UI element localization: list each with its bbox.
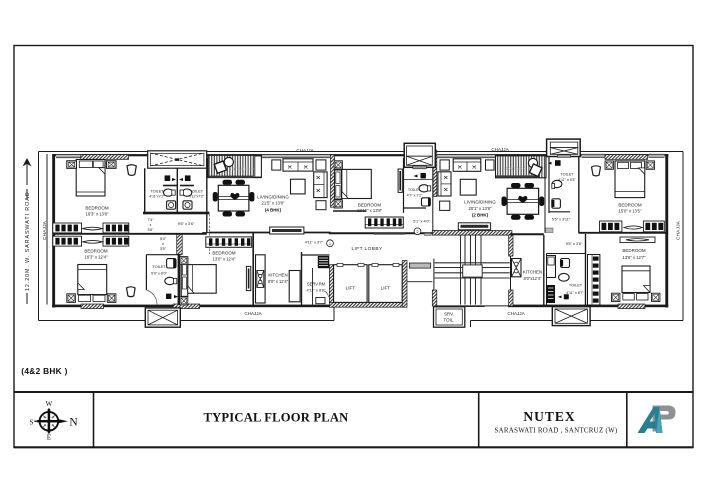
svg-text:KITCHEN: KITCHEN [523,269,542,274]
svg-text:(2 BHK): (2 BHK) [472,213,489,218]
svg-text:CHAJJA: CHAJJA [676,220,681,240]
svg-text:TOILET: TOILET [560,172,574,176]
svg-text:4'11"x7'2": 4'11"x7'2" [149,194,165,198]
svg-text:7'4": 7'4" [147,218,154,222]
svg-text:W: W [46,400,53,408]
svg-text:12.20M. W. SARASWATI ROAD: 12.20M. W. SARASWATI ROAD [25,192,31,291]
svg-text:LIFT: LIFT [381,286,391,291]
svg-text:E: E [47,433,52,441]
svg-text:LIFT LOBBY: LIFT LOBBY [351,246,383,252]
svg-text:CHAJJA: CHAJJA [244,311,262,316]
svg-text:BEDROOM: BEDROOM [85,206,109,211]
svg-text:CHAJJA: CHAJJA [42,220,47,240]
svg-text:SITOUT DECK: SITOUT DECK [232,167,255,171]
svg-text:4'11" x 8'6": 4'11" x 8'6" [307,287,327,292]
svg-text:KITCHEN: KITCHEN [268,273,287,278]
svg-text:13'0" x 12'4": 13'0" x 12'4" [213,257,236,262]
svg-text:(4&2 BHK ): (4&2 BHK ) [21,366,67,376]
svg-text:x: x [150,223,152,227]
svg-text:LIFT: LIFT [346,286,356,291]
svg-text:5'5" x 3'11": 5'5" x 3'11" [552,217,571,221]
svg-text:16'3" x 12'4": 16'3" x 12'4" [85,255,108,260]
svg-text:TOILET: TOILET [152,265,166,269]
svg-text:4'7" x 7'2": 4'7" x 7'2" [407,193,423,197]
svg-text:CHAJJA: CHAJJA [491,147,509,152]
svg-text:(4 BHK): (4 BHK) [265,207,282,212]
svg-text:21'5" x 13'8": 21'5" x 13'8" [262,201,285,206]
svg-text:5'0" x 8'0": 5'0" x 8'0" [151,272,167,276]
svg-text:BEDROOM: BEDROOM [212,251,236,256]
svg-text:TOILET: TOILET [150,190,164,194]
svg-text:TOILET: TOILET [569,283,583,287]
svg-text:8'0"x12'4": 8'0"x12'4" [524,276,542,281]
svg-text:LIVING/DINING: LIVING/DINING [257,194,289,199]
svg-text:4'11" x 3'7": 4'11" x 3'7" [305,241,324,245]
svg-text:SARASWATI ROAD , SANTCRUZ (W): SARASWATI ROAD , SANTCRUZ (W) [495,428,618,435]
svg-text:5'4": 5'4" [160,237,167,241]
svg-text:4'11" x 8'7": 4'11" x 8'7" [566,291,584,295]
svg-text:5'1" x 4'0": 5'1" x 4'0" [413,219,430,223]
svg-text:BEDROOM: BEDROOM [622,248,646,253]
svg-text:12'10" x 13'8": 12'10" x 13'8" [357,208,383,213]
svg-text:N: N [69,417,78,429]
svg-text:8'0" x 12'4": 8'0" x 12'4" [268,279,289,284]
svg-text:BEDROOM: BEDROOM [84,249,108,254]
svg-text:20'1" x 13'8": 20'1" x 13'8" [469,206,492,211]
svg-text:BEDROOM: BEDROOM [358,202,382,207]
svg-text:x: x [162,242,164,246]
svg-text:13'6" x 12'7": 13'6" x 12'7" [623,255,646,260]
svg-text:SITOUT DECK: SITOUT DECK [503,167,526,171]
svg-text:9'5" x 3'6": 9'5" x 3'6" [566,242,583,246]
svg-text:3'5": 3'5" [160,247,167,251]
svg-text:15'0" x 13'5": 15'0" x 13'5" [619,209,642,214]
svg-text:S: S [30,419,34,427]
svg-text:16'3" x 13'8": 16'3" x 13'8" [86,211,109,216]
svg-text:SERV.RM: SERV.RM [307,282,326,287]
svg-text:LIVING/DINING: LIVING/DINING [464,199,496,204]
svg-text:CHAJJA: CHAJJA [296,148,314,153]
svg-text:TYPICAL FLOOR PLAN: TYPICAL FLOOR PLAN [204,411,349,425]
svg-text:NUTEX: NUTEX [523,409,575,424]
svg-text:3'6": 3'6" [147,228,154,232]
svg-text:BEDROOM: BEDROOM [618,203,642,208]
svg-text:CHAJJA: CHAJJA [507,311,525,316]
svg-text:SRV.: SRV. [444,312,454,317]
svg-text:9'6" x 3'6": 9'6" x 3'6" [178,222,195,226]
svg-text:TOIL.: TOIL. [444,318,455,323]
